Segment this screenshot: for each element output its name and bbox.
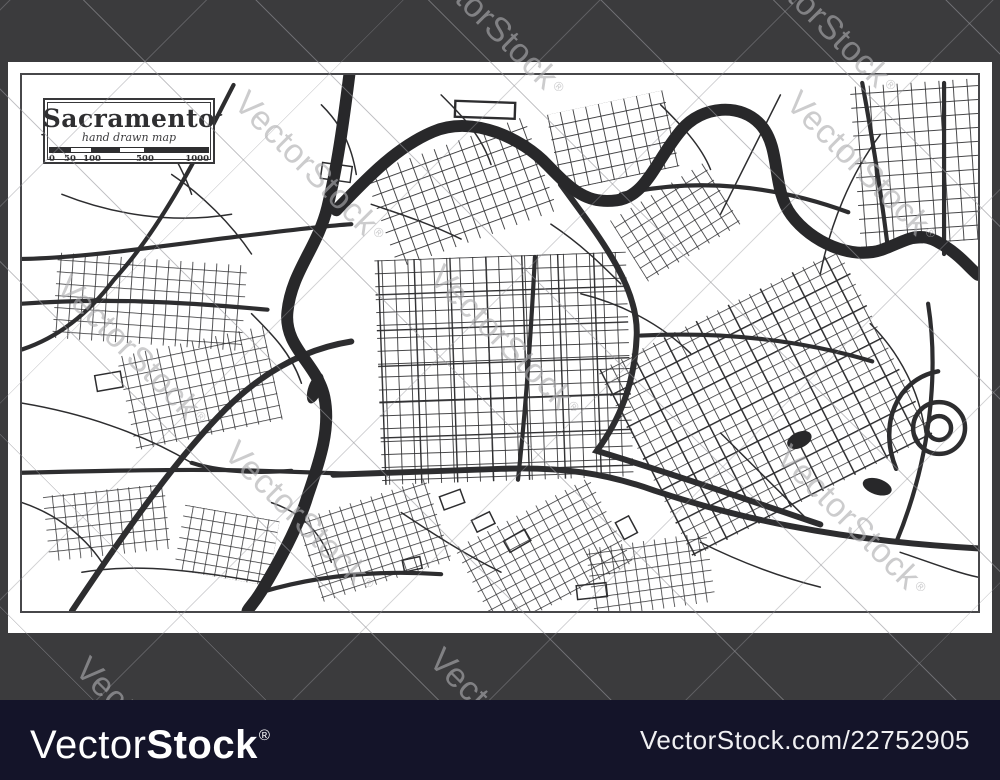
logo-word-stock: Stock	[146, 723, 257, 767]
scale-segment-white	[119, 147, 145, 153]
map-subtitle: hand drawn map	[82, 132, 176, 144]
map-scale-bar: 0 50 100 500 1000	[49, 147, 209, 165]
map-title-box: Sacramento hand drawn map 0 50 100 500 1…	[43, 98, 215, 164]
scale-bar-segments	[49, 147, 209, 153]
map-sheet: Sacramento hand drawn map 0 50 100 500 1…	[8, 62, 992, 633]
image-url-text: VectorStock.com/22752905	[640, 725, 970, 756]
footer-bar: VectorStock® VectorStock.com/22752905	[0, 700, 1000, 780]
vectorstock-logo: VectorStock®	[30, 716, 270, 765]
scale-segment-white	[70, 147, 92, 153]
scale-label: 1000	[185, 154, 209, 164]
logo-word-vector: Vector	[30, 723, 146, 767]
scale-label: 100	[83, 154, 101, 164]
scale-label: 50	[64, 154, 76, 164]
registered-mark-icon: ®	[259, 727, 271, 744]
stock-image-preview: Sacramento hand drawn map 0 50 100 500 1…	[0, 0, 1000, 780]
map-title: Sacramento	[43, 106, 216, 132]
scale-label: 500	[136, 154, 154, 164]
scale-bar-labels: 0 50 100 500 1000	[49, 154, 209, 165]
scale-label: 0	[49, 154, 55, 164]
